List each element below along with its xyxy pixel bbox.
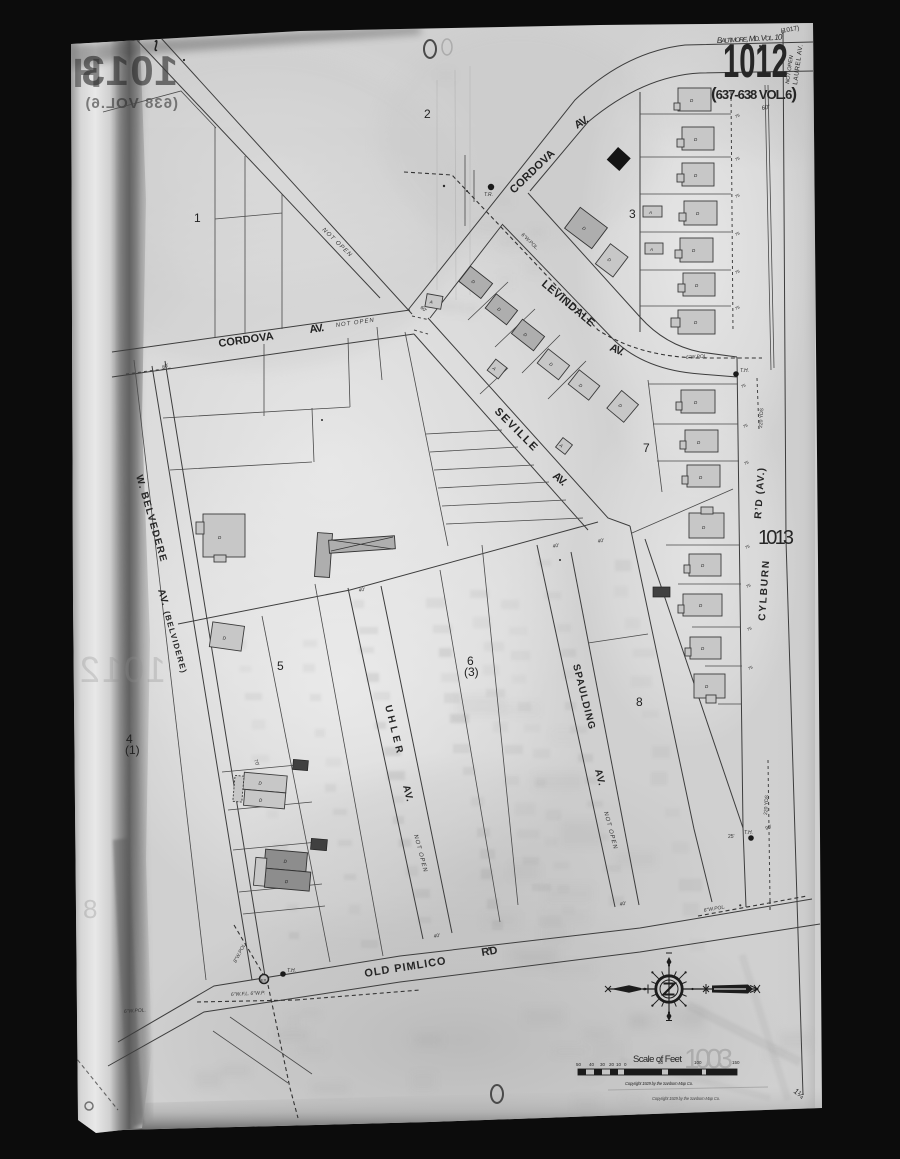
svg-text:EX: EX [261,978,267,983]
svg-text:1013: 1013 [758,527,794,549]
svg-text:1012: 1012 [723,36,788,88]
svg-text:50: 50 [576,1062,582,1067]
svg-text:(638 VOL.6): (638 VOL.6) [84,95,178,112]
svg-text:Copyright 1929 by the Sanborn: Copyright 1929 by the Sanborn Map Co. [625,1081,693,1086]
svg-text:20: 20 [609,1062,615,1067]
svg-text:3: 3 [629,207,636,221]
svg-text:25': 25' [728,834,735,840]
svg-text:8: 8 [83,894,97,924]
svg-text:30: 30 [600,1062,606,1067]
svg-text:50: 50 [658,1060,664,1065]
svg-text:1012: 1012 [78,649,166,690]
svg-text:Copyright 1929 by the Sanborn: Copyright 1929 by the Sanborn Map Co. [652,1096,720,1101]
svg-text:1: 1 [194,211,201,225]
svg-text:A: A [648,210,652,215]
svg-text:2: 2 [424,107,431,121]
svg-text:150: 150 [732,1060,740,1065]
svg-text:10: 10 [616,1062,622,1067]
svg-text:(3): (3) [464,665,479,679]
svg-text:100: 100 [694,1060,702,1065]
svg-text:8: 8 [636,695,643,709]
svg-text:T.R.: T.R. [484,192,493,198]
svg-text:T.H.: T.H. [744,830,753,836]
svg-text:5: 5 [277,659,284,673]
svg-text:T.H.: T.H. [740,368,749,374]
svg-text:40: 40 [589,1062,595,1067]
svg-text:T.H.: T.H. [287,968,296,974]
svg-text:(1): (1) [125,743,140,757]
svg-text:AV.: AV. [309,322,328,336]
svg-text:A: A [649,247,653,252]
svg-text:7: 7 [643,441,650,455]
svg-text:(637-638 VOL.6): (637-638 VOL.6) [711,84,797,103]
